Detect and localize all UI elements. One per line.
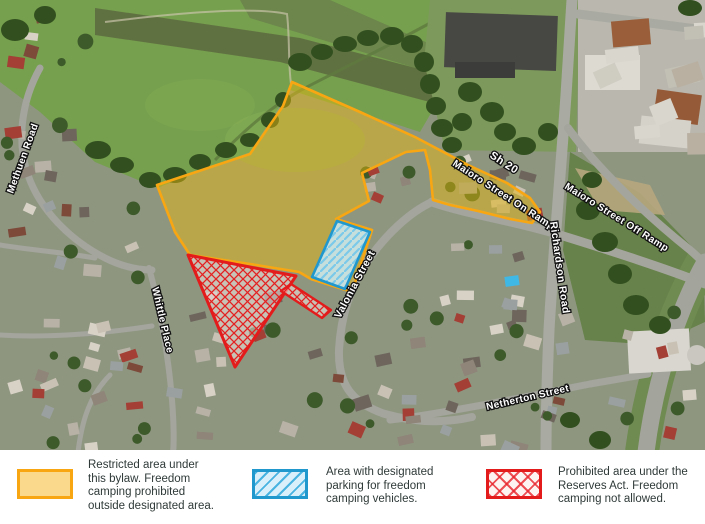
tree [47,436,60,449]
house [126,401,143,410]
house [79,207,89,218]
tree [132,434,142,444]
house [457,290,474,300]
house [634,124,660,139]
house [684,25,704,39]
legend-text-parking: Area with designated parking for freedom… [326,466,466,507]
parking-area-swatch [252,469,308,499]
house [110,361,123,371]
house [194,348,210,363]
tree [531,403,540,412]
tree [403,299,418,314]
house [83,264,102,277]
tree [340,398,355,413]
tree [138,422,151,435]
tree [430,311,444,325]
house [402,395,417,405]
tree [494,349,506,361]
house [503,299,517,310]
tree [403,166,416,179]
legend-text-prohibited: Prohibited area under the Reserves Act. … [558,466,704,507]
tree [620,412,634,426]
tree [509,324,523,338]
house [687,133,705,155]
house [555,342,569,355]
swimming-pool [504,275,519,287]
house [44,170,57,182]
house [333,374,345,383]
tree [265,322,280,337]
house [682,389,696,401]
house [480,434,496,446]
house [410,337,426,350]
tree [671,402,685,416]
house [489,245,502,254]
prohibited-area-swatch [486,469,542,499]
legend: Restricted area under this bylaw. Freedo… [0,450,705,524]
house [512,310,527,323]
house [32,389,44,399]
tree [1,137,13,149]
house [7,56,25,70]
restricted-area-swatch [17,469,73,499]
tree [68,356,81,369]
legend-text-restricted: Restricted area under this bylaw. Freedo… [88,459,238,513]
tree [78,34,94,50]
tree [667,306,681,320]
tree [50,351,58,359]
house [67,422,79,436]
aerial-map: Methuen Road Whittle Place Valonia Stree… [0,0,705,452]
tree [401,320,412,331]
tree [64,244,78,258]
tree [366,419,375,428]
tree [4,150,14,160]
tree [307,392,323,408]
tree [464,240,473,249]
tree [131,271,145,285]
house [216,357,226,367]
house [451,243,464,251]
tree [127,201,141,215]
house [61,204,71,217]
tree [78,379,91,392]
tree [52,117,68,133]
tree [57,58,65,66]
house [197,432,214,440]
tree [543,411,552,420]
tree [345,331,358,344]
house [44,319,60,328]
aerial-map-image: Methuen Road Whittle Place Valonia Stree… [0,0,705,452]
